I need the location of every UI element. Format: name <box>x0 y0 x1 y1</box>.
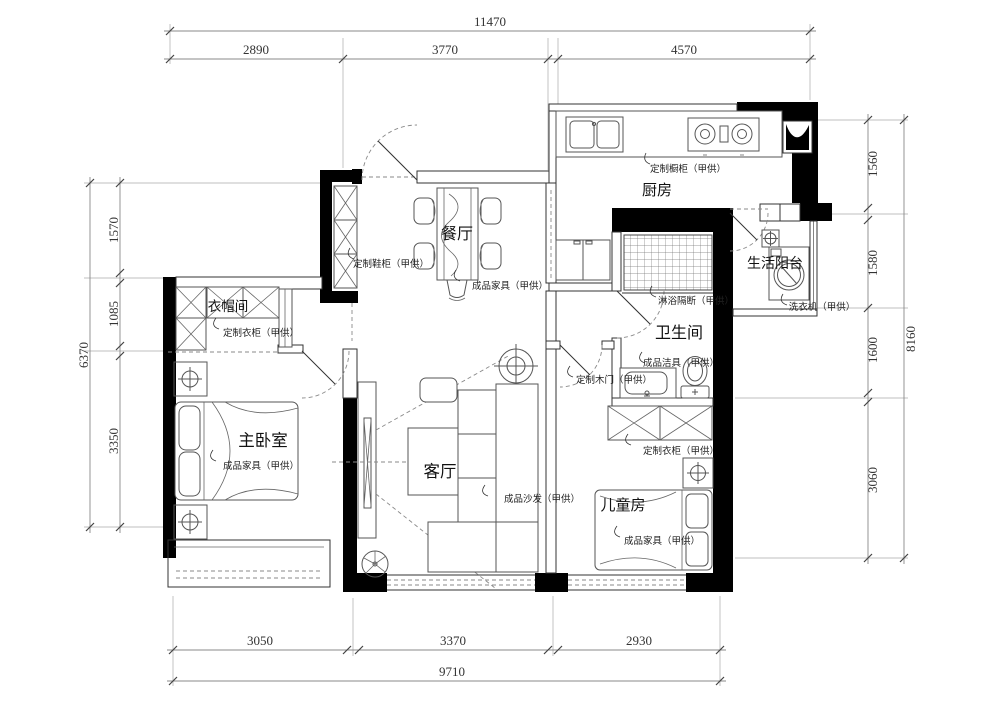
dim-top-total: 11470 <box>474 14 506 29</box>
bathroom-fixtures <box>620 235 713 398</box>
window-balcony-top <box>760 204 800 221</box>
dining-chair <box>481 243 501 269</box>
master-bedroom-door <box>302 351 349 398</box>
tv-cabinet <box>358 382 376 538</box>
window-balcony-right <box>810 221 817 309</box>
refrigerator <box>556 240 610 280</box>
ann-shower-partition: 淋浴隔断（甲供） <box>658 295 734 307</box>
dim-right-seg-1: 1560 <box>865 151 880 177</box>
label-kitchen: 厨房 <box>642 181 672 199</box>
dimension-bottom: 3050 3370 2930 9710 <box>167 596 726 686</box>
kids-room-furniture <box>595 458 713 570</box>
label-master-bedroom: 主卧室 <box>238 431 288 450</box>
ann-shoe-cabinet: 定制鞋柜（甲供） <box>353 258 429 270</box>
label-balcony: 生活阳台 <box>747 256 803 272</box>
shower-area <box>622 235 713 293</box>
ann-washing-machine: 洗衣机（甲供） <box>789 301 856 313</box>
dim-right-seg-3: 1600 <box>865 337 880 363</box>
shoe-cabinet <box>334 186 357 288</box>
label-cloakroom: 衣帽间 <box>208 299 249 315</box>
kids-wardrobe <box>608 406 712 440</box>
window-kids-bottom <box>568 575 686 590</box>
floor-drain-icon <box>762 230 779 247</box>
ann-dining-furniture: 成品家具（甲供） <box>472 280 548 292</box>
label-kids-room: 儿童房 <box>600 496 645 514</box>
dimension-right: 1560 1580 1600 3060 8160 <box>735 114 918 564</box>
nightstand-lamp-icon <box>174 362 207 396</box>
dim-left-seg-2: 1085 <box>106 301 121 327</box>
flue-icon <box>783 121 812 153</box>
dim-right-seg-4: 3060 <box>865 467 880 493</box>
dim-top-seg-2: 3770 <box>432 42 458 57</box>
ann-kids-furniture: 成品家具（甲供） <box>624 535 700 547</box>
dim-right-total: 8160 <box>903 326 918 352</box>
dining-head-chair <box>447 280 467 298</box>
side-table <box>420 378 457 402</box>
entry-door <box>362 125 417 180</box>
label-dining: 餐厅 <box>441 224 473 243</box>
ann-cloak-wardrobe: 定制衣柜（甲供） <box>223 327 299 339</box>
dim-bottom-total: 9710 <box>439 664 465 679</box>
dim-left-seg-1: 1570 <box>106 217 121 243</box>
dim-top-seg-3: 4570 <box>671 42 697 57</box>
dim-bottom-seg-2: 3370 <box>440 633 466 648</box>
ann-sanitary-ware: 成品洁具（甲供） <box>643 357 719 369</box>
washing-machine-icon <box>769 247 809 300</box>
ann-kitchen-cabinet: 定制橱柜（甲供） <box>650 163 726 175</box>
window-living-bottom <box>387 575 535 590</box>
dining-chair <box>414 198 434 224</box>
floor-plan-drawing: 11470 2890 3770 4570 6370 1570 1085 3350 <box>0 0 1000 707</box>
nightstand-lamp-icon <box>174 505 207 539</box>
dim-right-seg-2: 1580 <box>865 250 880 276</box>
ann-wood-door: 定制木门（甲供） <box>576 374 652 386</box>
cloakroom-wardrobe <box>176 287 292 350</box>
floor-plan-page: 11470 2890 3770 4570 6370 1570 1085 3350 <box>0 0 1000 707</box>
label-bathroom: 卫生间 <box>655 323 703 342</box>
master-bedroom-furniture <box>174 362 298 539</box>
dim-bottom-seg-3: 2930 <box>626 633 652 648</box>
bay-window-master-bedroom <box>168 540 330 587</box>
dining-chair <box>481 198 501 224</box>
dim-bottom-seg-1: 3050 <box>247 633 273 648</box>
dim-top-seg-1: 2890 <box>243 42 269 57</box>
dim-left-seg-3: 3350 <box>106 428 121 454</box>
master-bed <box>175 402 298 500</box>
ceiling-lamp-icon <box>494 344 538 388</box>
ann-sofa: 成品沙发（甲供） <box>504 493 580 505</box>
nightstand-lamp-icon <box>683 458 713 488</box>
label-living-room: 客厅 <box>424 462 457 481</box>
ann-bedroom-furniture: 成品家具（甲供） <box>223 460 299 472</box>
dim-left-total: 6370 <box>76 342 91 368</box>
ann-kids-wardrobe: 定制衣柜（甲供） <box>643 445 719 457</box>
